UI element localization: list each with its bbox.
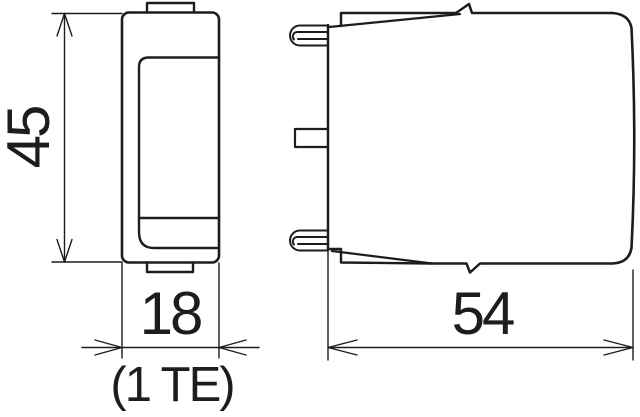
width-dimension-label: 18: [100, 284, 240, 344]
drawing-canvas: [0, 0, 640, 417]
front-view: [122, 3, 219, 272]
side-top-seam-line: [329, 14, 460, 27]
side-body-right-edge: [612, 13, 634, 264]
front-inner-panel: [139, 58, 219, 249]
dimension-drawing: 45 18 (1 TE) 54: [0, 0, 640, 417]
front-bottom-tab: [147, 263, 193, 273]
width-dimension-note: (1 TE): [72, 359, 272, 411]
side-snap-clip-top: [290, 26, 328, 46]
side-snap-clip-bottom: [290, 231, 328, 251]
depth-dimension-label: 54: [412, 284, 552, 344]
front-body: [122, 13, 219, 263]
side-view: [290, 4, 634, 273]
height-dimension: [52, 14, 122, 263]
front-top-tab: [147, 3, 194, 13]
side-terminal-tab: [295, 129, 328, 147]
height-dimension-label: 45: [0, 93, 59, 183]
side-bottom-edge-and-latch: [432, 264, 612, 273]
